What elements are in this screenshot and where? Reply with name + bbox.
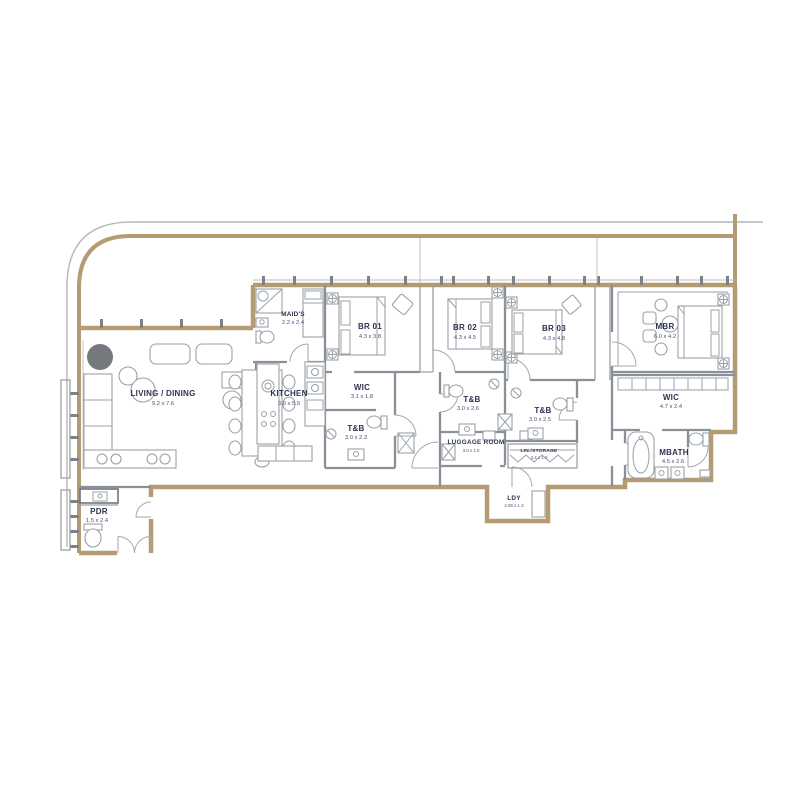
label-maids: MAID'S (281, 311, 305, 318)
label-wic2: WIC (663, 393, 679, 402)
toilet (367, 416, 387, 429)
vanity-sinks (655, 467, 684, 479)
dim-linen: 3.4 x 1.0 (531, 455, 548, 460)
sink (459, 424, 475, 435)
window-mullions (70, 276, 729, 548)
toilet (256, 331, 274, 343)
label-living: LIVING / DINING (130, 389, 195, 398)
sink (348, 449, 364, 460)
dim-luggage: 3.0 x 1.0 (463, 448, 480, 453)
bench (196, 344, 232, 364)
floor-plan-canvas: LIVING / DINING 9.2 x 7.6 KITCHEN 3.0 x … (0, 0, 800, 800)
label-tb1: T&B (347, 424, 364, 433)
toilet (444, 385, 463, 397)
wic2-closet (618, 378, 728, 390)
dim-maids: 2.2 x 2.4 (282, 320, 305, 326)
dim-kitchen: 3.0 x 5.5 (278, 401, 300, 407)
chair (561, 294, 581, 314)
ldy-fixtures (532, 491, 545, 517)
label-tb3: T&B (534, 406, 551, 415)
bed (303, 289, 323, 337)
bed (678, 306, 722, 358)
dim-ldy: 2.85 x 1.3 (504, 503, 524, 508)
bench (150, 344, 190, 364)
dim-br01: 4.3 x 3.8 (359, 334, 381, 340)
label-linen: LIN./STORAGE (520, 448, 558, 454)
toilet (689, 433, 709, 446)
dim-wic2: 4.7 x 2.4 (660, 404, 683, 410)
exterior-fins (61, 380, 70, 550)
shafts (398, 414, 532, 460)
dim-br03: 4.3 x 4.8 (543, 336, 565, 342)
exterior-walls (79, 214, 735, 553)
balcony-dividers (420, 238, 597, 283)
toilet (84, 524, 102, 547)
label-luggage: LUGGAGE ROOM (448, 439, 505, 446)
kitchen-counter (257, 364, 279, 444)
label-pdr: PDR (90, 507, 108, 516)
toilet (553, 398, 573, 411)
dim-tb3: 3.0 x 2.5 (529, 417, 551, 423)
dim-pdr: 1.5 x 2.4 (86, 518, 109, 524)
label-wic1: WIC (354, 383, 370, 392)
dim-mbath: 4.5 x 2.6 (662, 459, 684, 465)
label-kitchen: KITCHEN (270, 389, 307, 398)
dim-wic1: 3.1 x 1.8 (351, 394, 373, 400)
bathtub (628, 432, 654, 478)
kitchen-island (258, 446, 312, 461)
dim-br02: 4.3 x 4.5 (454, 335, 476, 341)
chair (392, 293, 414, 315)
label-br02: BR 02 (453, 323, 477, 332)
sink (528, 428, 543, 439)
dim-tb1: 3.0 x 2.3 (345, 435, 367, 441)
site-outline (67, 222, 763, 547)
label-tb2: T&B (463, 395, 480, 404)
label-br01: BR 01 (358, 322, 382, 331)
label-ldy: LDY (507, 495, 521, 502)
label-mbath: MBATH (659, 448, 689, 457)
floor-plan-drawing: LIVING / DINING 9.2 x 7.6 KITCHEN 3.0 x … (0, 0, 800, 800)
dim-tb2: 3.0 x 2.6 (457, 406, 479, 412)
washer (532, 491, 545, 517)
dim-living: 9.2 x 7.6 (152, 401, 174, 407)
label-mbr: MBR (656, 322, 675, 331)
label-br03: BR 03 (542, 324, 566, 333)
plant (87, 344, 113, 370)
dim-mbr: 6.0 x 4.2 (654, 334, 676, 340)
